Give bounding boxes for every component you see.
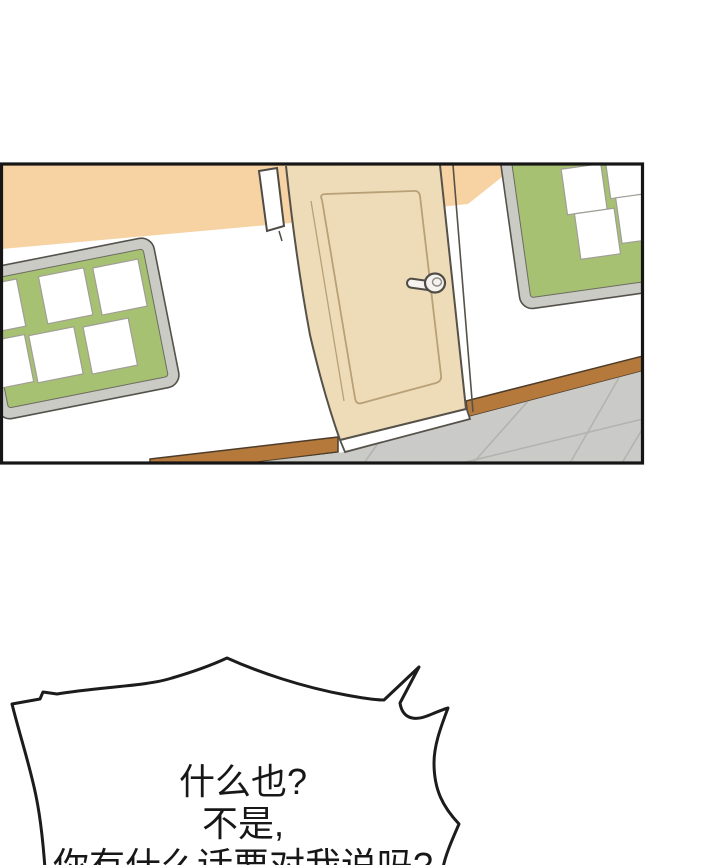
webtoon-page: 什么也? 不是, 你有什么话要对我说吗? bbox=[0, 0, 720, 865]
bubble-text-line: 什么也? bbox=[53, 761, 433, 803]
bulletin-board-right bbox=[496, 108, 689, 310]
pinned-paper bbox=[93, 259, 147, 315]
bubble-text-line: 不是, bbox=[53, 803, 433, 845]
pinned-paper bbox=[83, 318, 137, 374]
comic-art bbox=[0, 0, 720, 865]
pinned-paper bbox=[561, 164, 607, 215]
speech-bubble-text: 什么也? 不是, 你有什么话要对我说吗? bbox=[53, 761, 433, 865]
comic-panel bbox=[0, 108, 690, 478]
pinned-paper bbox=[38, 268, 92, 324]
pinned-paper bbox=[29, 327, 83, 383]
pinned-paper bbox=[616, 192, 662, 243]
pinned-paper bbox=[574, 208, 620, 259]
bubble-text-line: 你有什么话要对我说吗? bbox=[53, 845, 433, 865]
